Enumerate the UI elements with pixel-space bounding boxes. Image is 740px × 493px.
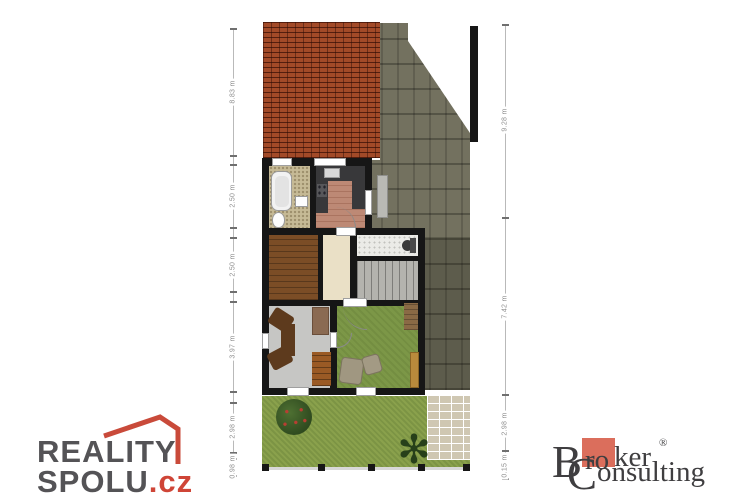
dim-tick — [230, 227, 237, 229]
stone-path-shade — [425, 237, 470, 390]
staircase — [357, 261, 418, 300]
dim-tick — [230, 301, 237, 303]
dim-label: 2.50 m — [230, 182, 237, 209]
dim-tick — [230, 402, 237, 404]
dim-tick — [230, 28, 237, 30]
dim-tick — [502, 217, 509, 219]
boundary-wall — [470, 26, 478, 142]
fence-post — [318, 464, 325, 471]
wall-right — [418, 228, 425, 395]
dim-label: 7.42 m — [502, 293, 509, 320]
sink — [295, 196, 308, 207]
living-bench — [410, 352, 419, 388]
bathtub — [271, 171, 292, 211]
fence-post — [463, 464, 470, 471]
kitchen-sink — [324, 168, 340, 178]
dim-tick — [230, 164, 237, 166]
dim-label: 2.98 m — [230, 413, 237, 440]
dim-tick — [230, 155, 237, 157]
wood-stair-room-floor — [269, 235, 318, 300]
hallway-floor — [323, 235, 350, 300]
dim-label: 8.83 m — [230, 78, 237, 105]
fence-line — [262, 467, 470, 470]
fence-post — [418, 464, 425, 471]
window-kitchen-top — [314, 158, 346, 166]
dim-label: 0.98 m — [230, 453, 237, 480]
window-bathroom-top — [272, 158, 292, 166]
dim-tick — [502, 394, 509, 396]
window-office-left — [262, 333, 269, 349]
dim-label: 0.15 m — [502, 452, 509, 479]
broker-registered-mark: ® — [659, 438, 667, 449]
reality-spolu-word: SPOLU — [37, 464, 149, 493]
window-living-bottom — [356, 387, 376, 396]
wc-toilet-tank — [410, 238, 416, 253]
consulting-initial-c: C — [567, 452, 597, 493]
dim-label: 3.97 m — [230, 333, 237, 360]
dim-label: 9.28 m — [502, 106, 509, 133]
bathtub-basin — [275, 176, 289, 207]
garden-bush — [276, 399, 312, 435]
dim-tick — [230, 237, 237, 239]
office-stairs — [312, 352, 331, 386]
fence-post — [262, 464, 269, 471]
dim-tick — [230, 291, 237, 293]
window-kitchen-right — [365, 190, 372, 215]
tiled-roof — [263, 22, 380, 158]
fence-post — [368, 464, 375, 471]
wall-hall-right — [350, 234, 357, 300]
reality-spolu-logo-line2: SPOLU.cz — [37, 466, 193, 493]
reality-spolu-tld: .cz — [149, 464, 193, 493]
door-office-living — [330, 332, 337, 348]
door-kitchen-hall — [336, 227, 356, 236]
office-wardrobe — [312, 307, 329, 335]
kitchen-counter-right — [352, 181, 365, 209]
dim-label: 2.50 m — [230, 251, 237, 278]
terrace-bench — [377, 175, 388, 218]
dim-label: 2.98 m — [502, 410, 509, 437]
window-office-bottom — [287, 387, 309, 396]
living-shelf — [404, 303, 418, 330]
dim-tick — [230, 391, 237, 393]
dim-tick — [502, 24, 509, 26]
reality-spolu-logo-line1: REALITY — [37, 436, 177, 467]
garden-plant-icon: ✻ — [392, 428, 436, 472]
consulting-rest-letters: onsulting — [597, 458, 705, 487]
stove — [317, 184, 327, 197]
toilet — [272, 212, 285, 228]
floorplan-image: ✻ 8.83 m 2.50 m 2.50 m 3.97 m 2.98 m 0.9… — [0, 0, 740, 493]
